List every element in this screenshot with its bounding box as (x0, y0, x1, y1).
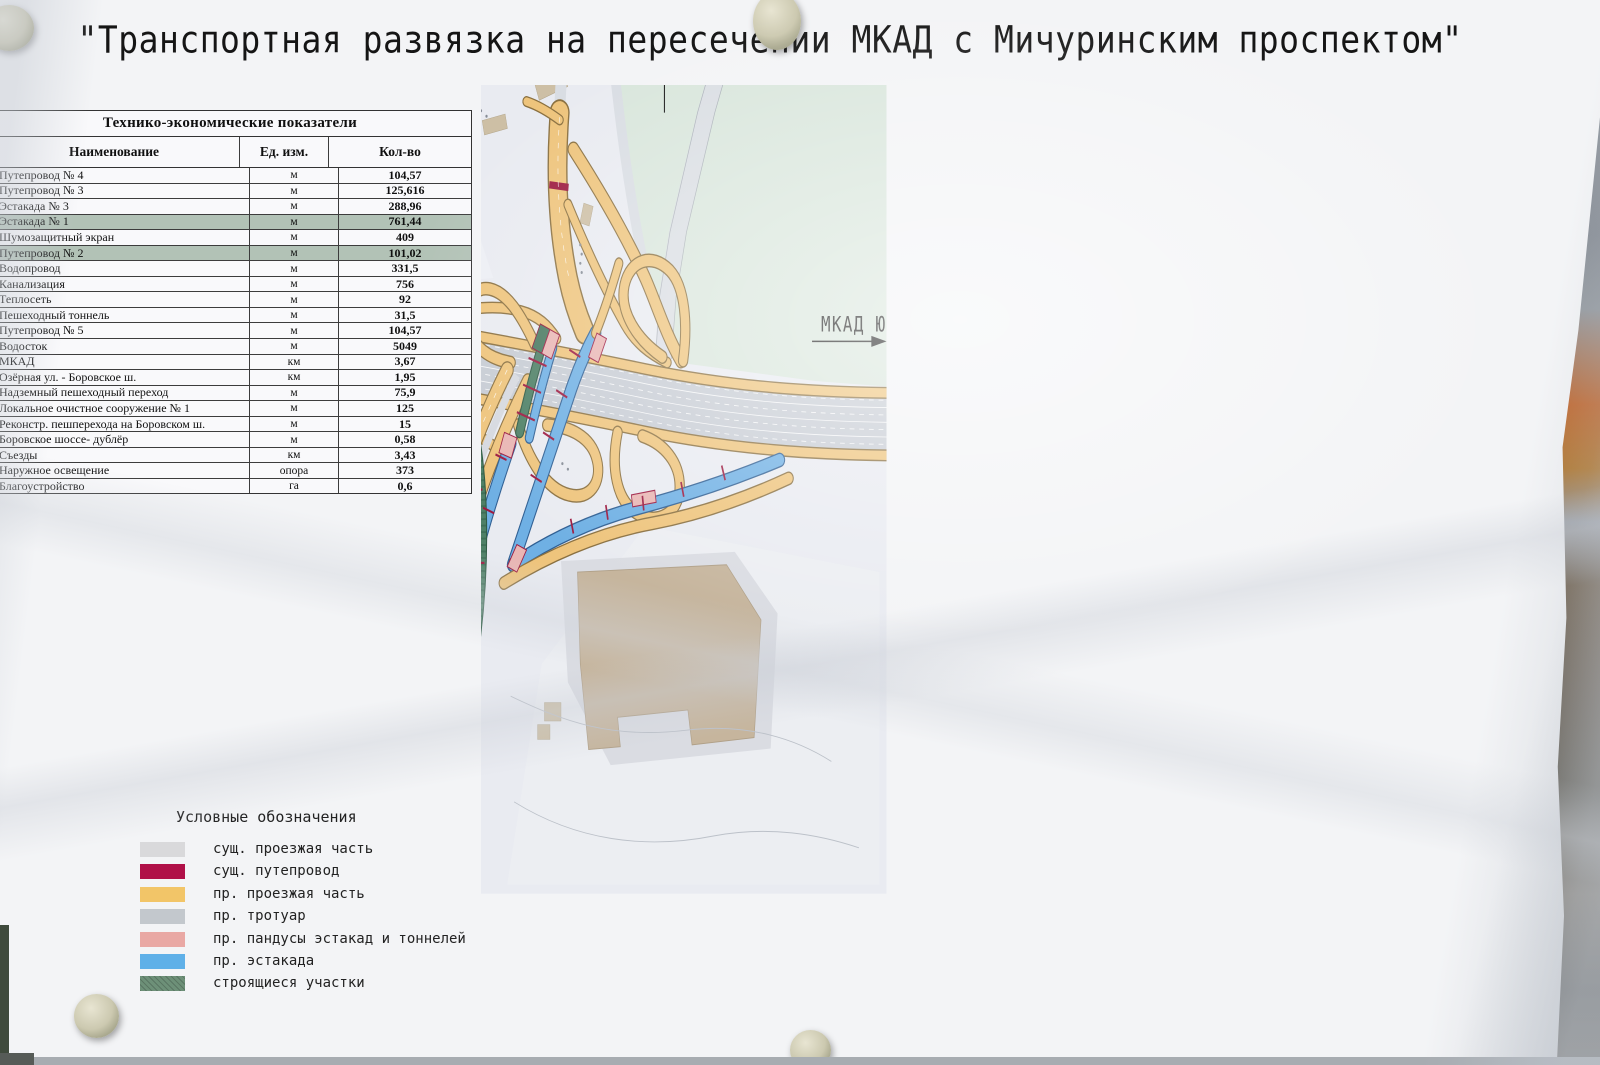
legend-swatch-icon (140, 887, 185, 902)
table-row: Путепровод № 5м104,57 (0, 323, 471, 339)
row-name: Пешеходный тоннель (0, 308, 249, 323)
legend-label: пр. пандусы эстакад и тоннелей (213, 932, 466, 947)
row-unit: м (249, 308, 339, 323)
photo-background-bottom (0, 1057, 1600, 1065)
row-unit: км (249, 448, 339, 463)
table-row: Водопроводм331,5 (0, 261, 471, 277)
table-row: Канализациям756 (0, 277, 471, 293)
table-row: Съездыкм3,43 (0, 448, 471, 464)
magnet (1570, 748, 1600, 790)
row-qty: 331,5 (339, 261, 471, 276)
row-name: МКАД (0, 354, 249, 369)
row-name: Эстакада № 1 (0, 214, 249, 229)
row-unit: м (249, 168, 339, 183)
row-unit: м (249, 199, 339, 214)
indicators-table: Технико-экономические показатели Наимено… (0, 110, 472, 494)
photo-background-left (0, 925, 9, 1065)
row-name: Путепровод № 2 (0, 246, 249, 261)
row-unit: м (249, 246, 339, 261)
legend-label: пр. эстакада (213, 954, 314, 969)
photo-background-right (1552, 0, 1600, 1065)
table-row: Эстакада № 1м761,44 (0, 215, 471, 231)
row-name: Реконстр. пешперехода на Боровском ш. (0, 417, 249, 432)
table-row: Теплосетьм92 (0, 292, 471, 308)
row-qty: 0,6 (339, 479, 471, 494)
row-name: Путепровод № 4 (0, 168, 249, 183)
row-qty: 31,5 (339, 308, 471, 323)
row-qty: 125,616 (339, 183, 471, 198)
legend-items: сущ. проезжая частьсущ. путепроводпр. пр… (140, 842, 466, 999)
legend-swatch-icon (140, 909, 185, 924)
row-name: Съезды (0, 448, 249, 463)
row-unit: м (249, 386, 339, 401)
row-name: Путепровод № 3 (0, 183, 249, 198)
row-qty: 5049 (339, 339, 471, 354)
table-row: Надземный пешеходный переходм75,9 (0, 386, 471, 402)
row-qty: 104,57 (339, 323, 471, 338)
legend-label: пр. проезжая часть (213, 887, 365, 902)
row-unit: м (249, 417, 339, 432)
row-unit: га (249, 479, 339, 494)
row-unit: м (249, 339, 339, 354)
table-row: Благоустройствога0,6 (0, 479, 471, 494)
legend-label: сущ. путепровод (213, 864, 339, 879)
col-header-qty: Кол-во (329, 137, 471, 167)
row-name: Озёрная ул. - Боровское ш. (0, 370, 249, 385)
legend-item: пр. тротуар (140, 909, 466, 931)
row-name: Водосток (0, 339, 249, 354)
row-unit: опора (249, 463, 339, 478)
row-name: Боровское шоссе- дублёр (0, 432, 249, 447)
legend-item: пр. проезжая часть (140, 887, 466, 909)
row-name: Канализация (0, 277, 249, 292)
legend-title: Условные обозначения (176, 808, 466, 826)
row-name: Водопровод (0, 261, 249, 276)
table-row: Локальное очистное сооружение № 1м125 (0, 401, 471, 417)
row-unit: м (249, 215, 339, 230)
photo-of-poster: { "title": "\"Транспортная развязка на п… (0, 0, 1600, 1065)
row-qty: 15 (339, 417, 471, 432)
row-qty: 409 (339, 230, 471, 245)
legend-item: пр. эстакада (140, 954, 466, 976)
legend: Условные обозначения сущ. проезжая часть… (140, 808, 466, 999)
row-name: Шумозащитный экран (0, 230, 249, 245)
row-qty: 101,02 (339, 246, 471, 261)
label-mkad-south: МКАД ЮГ (821, 313, 897, 337)
col-header-name: Наименование (0, 137, 239, 167)
table-row: Водостокм5049 (0, 339, 471, 355)
legend-swatch-icon (140, 842, 185, 857)
legend-item: пр. пандусы эстакад и тоннелей (140, 932, 466, 954)
table-row: Реконстр. пешперехода на Боровском ш.м15 (0, 417, 471, 433)
legend-item: сущ. путепровод (140, 864, 466, 886)
legend-label: пр. тротуар (213, 909, 306, 924)
row-name: Надземный пешеходный переход (0, 385, 249, 400)
table-row: Пешеходный тоннельм31,5 (0, 308, 471, 324)
table-row: Путепровод № 4м104,57 (0, 168, 471, 184)
table-row: Боровское шоссе- дублёрм0,58 (0, 432, 471, 448)
legend-swatch-icon (140, 932, 185, 947)
interchange-map: МОСКВА МКАД ЗАПАД МКАД ЮГ ОБЛАСТЬ (481, 85, 1550, 1050)
row-qty: 104,57 (339, 168, 471, 183)
row-unit: м (249, 432, 339, 447)
legend-item: сущ. проезжая часть (140, 842, 466, 864)
table-row: Путепровод № 3м125,616 (0, 184, 471, 200)
row-name: Локальное очистное сооружение № 1 (0, 401, 249, 416)
row-qty: 125 (339, 401, 471, 416)
row-unit: м (249, 184, 339, 199)
row-qty: 756 (339, 277, 471, 292)
table-row: Эстакада № 3м288,96 (0, 199, 471, 215)
table-row: Озёрная ул. - Боровское ш.км1,95 (0, 370, 471, 386)
row-unit: м (249, 292, 339, 307)
row-unit: м (249, 261, 339, 276)
row-name: Наружное освещение (0, 463, 249, 478)
row-qty: 3,67 (339, 354, 471, 369)
row-unit: км (249, 370, 339, 385)
row-name: Путепровод № 5 (0, 323, 249, 338)
row-unit: км (249, 355, 339, 370)
row-qty: 1,95 (339, 370, 471, 385)
row-qty: 75,9 (339, 385, 471, 400)
row-qty: 3,43 (339, 448, 471, 463)
table-row: Путепровод № 2м101,02 (0, 246, 471, 262)
col-header-unit: Ед. изм. (239, 137, 329, 167)
row-unit: м (249, 323, 339, 338)
row-unit: м (249, 401, 339, 416)
table-title: Технико-экономические показатели (0, 110, 472, 137)
table-body: Путепровод № 4м104,57Путепровод № 3м125,… (0, 168, 472, 494)
legend-swatch-icon (140, 976, 185, 991)
legend-swatch-icon (140, 954, 185, 969)
row-name: Благоустройство (0, 479, 249, 494)
magnet (74, 994, 119, 1038)
row-qty: 92 (339, 292, 471, 307)
row-qty: 0,58 (339, 432, 471, 447)
row-qty: 761,44 (339, 214, 471, 229)
row-unit: м (249, 230, 339, 245)
legend-label: сущ. проезжая часть (213, 842, 373, 857)
table-row: Шумозащитный экранм409 (0, 230, 471, 246)
legend-swatch-icon (140, 864, 185, 879)
magnet (0, 5, 34, 51)
row-name: Эстакада № 3 (0, 199, 249, 214)
photo-background-corner (0, 1053, 34, 1065)
row-unit: м (249, 277, 339, 292)
legend-label: строящиеся участки (213, 976, 365, 991)
row-qty: 288,96 (339, 199, 471, 214)
table-header: Наименование Ед. изм. Кол-во (0, 137, 472, 168)
table-row: Наружное освещениеопора373 (0, 463, 471, 479)
row-name: Теплосеть (0, 292, 249, 307)
table-row: МКАДкм3,67 (0, 355, 471, 371)
row-qty: 373 (339, 463, 471, 478)
legend-item: строящиеся участки (140, 976, 466, 998)
